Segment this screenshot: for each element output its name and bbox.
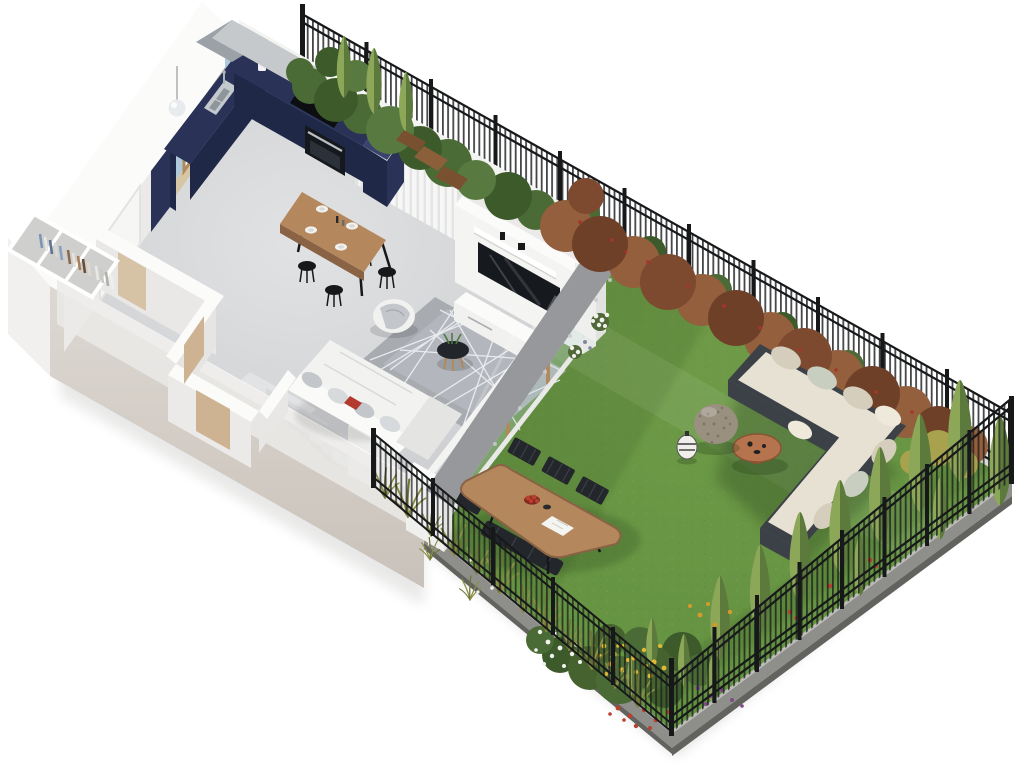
floorplan-render: Lawn Black metal picket fence on a concr… bbox=[0, 0, 1024, 776]
rattan-sphere: Decorative rattan sphere bbox=[692, 404, 740, 455]
floorplan-stage: Lawn Black metal picket fence on a concr… bbox=[0, 0, 1024, 776]
